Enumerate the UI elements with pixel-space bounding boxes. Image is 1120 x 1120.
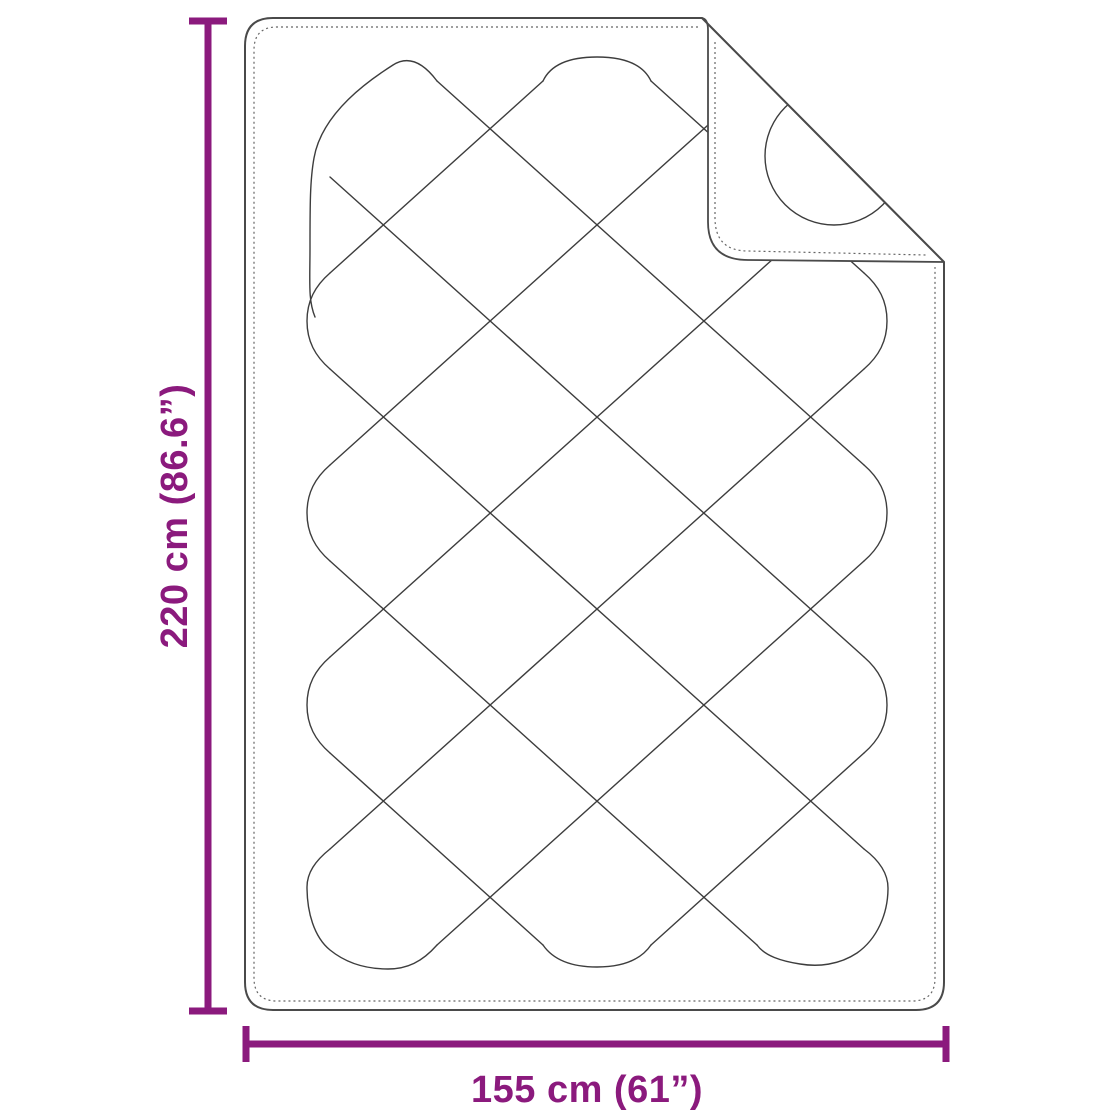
width-dimension-label: 155 cm (61”)	[471, 1069, 703, 1111]
height-dimension-label: 220 cm (86.6”)	[154, 384, 196, 649]
width-dimension-line	[246, 1026, 946, 1062]
quilted-blanket-diagram: 220 cm (86.6”) 155 cm (61”)	[0, 0, 1120, 1120]
diagram-canvas: 220 cm (86.6”) 155 cm (61”)	[0, 0, 1120, 1120]
height-dimension: 220 cm (86.6”)	[154, 21, 227, 1011]
width-dimension: 155 cm (61”)	[246, 1026, 946, 1111]
